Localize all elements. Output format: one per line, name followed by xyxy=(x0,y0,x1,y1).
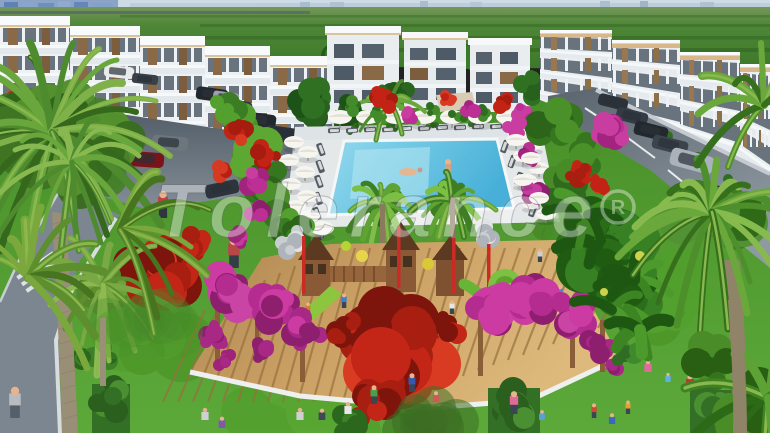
svg-text:Tolerance: Tolerance xyxy=(155,169,595,254)
svg-text:R: R xyxy=(611,197,626,219)
